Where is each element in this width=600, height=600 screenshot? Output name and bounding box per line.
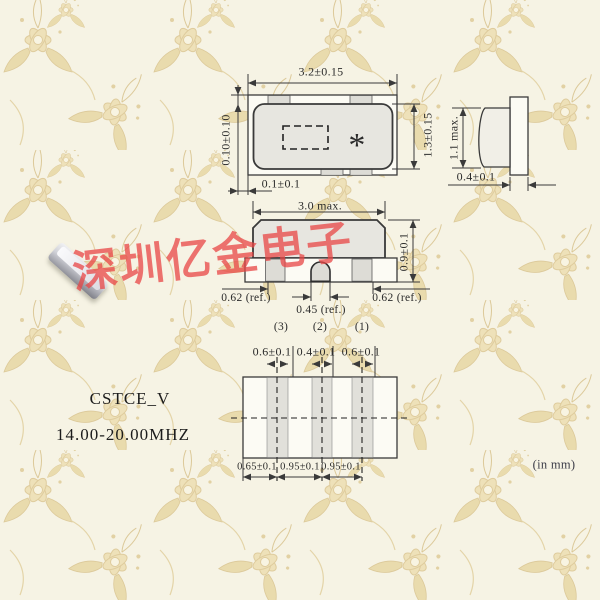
land-pattern-top-dim-3: 0.6±0.1 bbox=[342, 345, 381, 360]
side-view-body bbox=[479, 108, 510, 167]
pin-label-2: (2) bbox=[313, 321, 327, 333]
front-view-height-dim: 0.9±0.1 bbox=[397, 233, 412, 272]
land-pattern-bottom-dim-1: 0.65±0.1 bbox=[237, 462, 277, 473]
top-view-top-margin-dim: 0.10±0.10 bbox=[219, 114, 234, 165]
land-pattern-bottom-dim-2: 0.95±0.1 bbox=[280, 462, 320, 473]
land-pattern-top-dim-1: 0.6±0.1 bbox=[253, 345, 292, 360]
top-view-side-margin-dim: 0.1±0.1 bbox=[262, 177, 301, 192]
land-pattern-bottom-dim-3: 0.95±0.1 bbox=[321, 462, 361, 473]
side-view-terminal-dim: 0.4±0.1 bbox=[457, 170, 496, 185]
top-view-drawing bbox=[228, 74, 420, 195]
top-view-body bbox=[254, 104, 393, 169]
product-series-label: CSTCE_V bbox=[90, 389, 171, 409]
pin-label-1: (1) bbox=[355, 321, 369, 333]
side-view-terminal bbox=[510, 97, 528, 175]
land-pattern-top-dim-2: 0.4±0.1 bbox=[297, 345, 336, 360]
top-view-width-dim: 3.2±0.15 bbox=[299, 65, 344, 80]
side-view-height-dim: 1.1 max. bbox=[447, 116, 462, 160]
pin-label-3: (3) bbox=[274, 321, 288, 333]
product-frequency-range: 14.00-20.00MHZ bbox=[56, 425, 190, 445]
units-note: (in mm) bbox=[533, 458, 576, 473]
top-view-terminal-tab bbox=[268, 96, 290, 105]
screenshot-root: 3.2±0.15 1.3±0.15 0.10±0.10 0.1±0.1 * 1.… bbox=[0, 0, 600, 600]
front-view-pad-left-dim: 0.62 (ref.) bbox=[221, 292, 271, 304]
top-view-terminal-tab bbox=[350, 96, 372, 105]
top-view-height-dim: 1.3±0.15 bbox=[421, 113, 436, 158]
front-view-pad-right-dim: 0.62 (ref.) bbox=[372, 292, 422, 304]
front-view-pad-center-dim: 0.45 (ref.) bbox=[296, 304, 346, 316]
top-view-marking-asterisk: * bbox=[348, 127, 365, 165]
